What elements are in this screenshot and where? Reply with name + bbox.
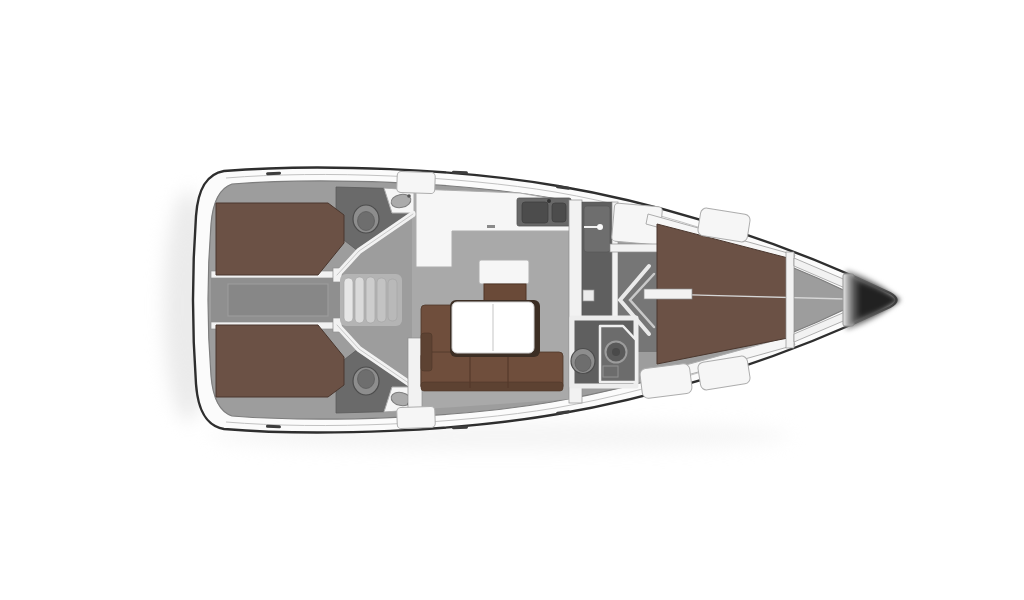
- floor-plan-canvas: Top-view interior layout plan of a saili…: [0, 0, 1024, 600]
- berth-entry-wall: [644, 289, 692, 299]
- sofa-backrest: [421, 382, 563, 391]
- cabinet-front: [484, 284, 526, 302]
- engine-hatch: [228, 284, 328, 316]
- sink-faucet: [547, 199, 551, 203]
- seat-locker-aft-bottom: [639, 363, 692, 399]
- companionway-steps: [344, 277, 397, 323]
- toilet-bowl: [358, 370, 375, 389]
- step-tread: [388, 279, 397, 321]
- corridor-cross-wall: [610, 244, 662, 252]
- deck-hatch-top: [397, 171, 436, 193]
- forward-head: [571, 318, 636, 386]
- cabinet-top: [479, 260, 529, 284]
- step-tread: [366, 277, 375, 323]
- step-tread: [355, 277, 364, 323]
- faucet: [407, 194, 411, 198]
- forward-bulkhead: [786, 252, 794, 348]
- bow-tip: [846, 270, 901, 330]
- shower-drain-center: [612, 348, 620, 356]
- step-tread: [344, 278, 353, 322]
- sink-basin-small: [552, 203, 566, 222]
- aft-berth-port: [216, 203, 344, 275]
- shower-tray: [584, 206, 610, 252]
- panel-switch: [583, 290, 594, 301]
- deck-hatch-bottom: [397, 406, 436, 428]
- salon-cabinet: [479, 260, 529, 302]
- step-tread: [377, 278, 386, 322]
- salon-table: [450, 300, 540, 357]
- toilet-bowl: [575, 355, 591, 372]
- salon-wall-aft-lower: [408, 338, 422, 412]
- sofa-armrest: [421, 333, 432, 371]
- toilet-bowl: [358, 212, 375, 231]
- yacht-floor-plan: Top-view interior layout plan of a saili…: [0, 0, 1024, 600]
- aft-berth-starboard: [216, 325, 344, 397]
- sink-basin-large: [522, 202, 548, 223]
- door-knob: [597, 224, 603, 230]
- counter-handle: [487, 225, 495, 228]
- companionway: [211, 268, 402, 332]
